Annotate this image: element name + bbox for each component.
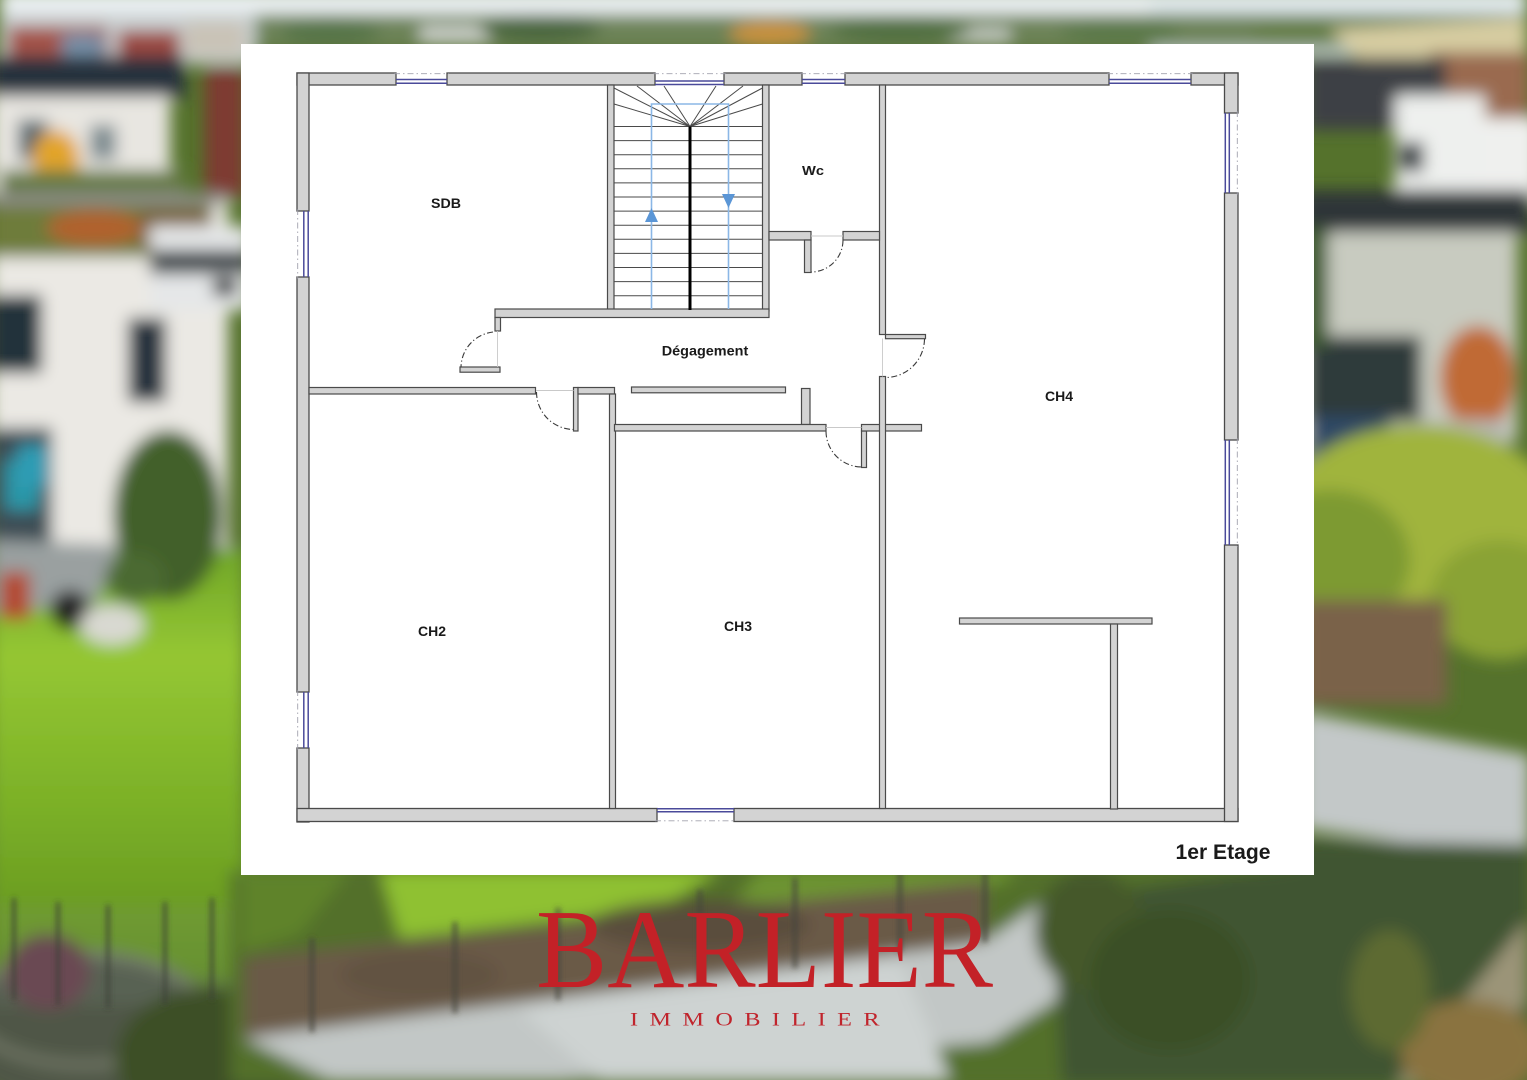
svg-text:BARLIER: BARLIER — [536, 888, 993, 1012]
svg-text:IMMOBILIER: IMMOBILIER — [630, 1010, 891, 1031]
